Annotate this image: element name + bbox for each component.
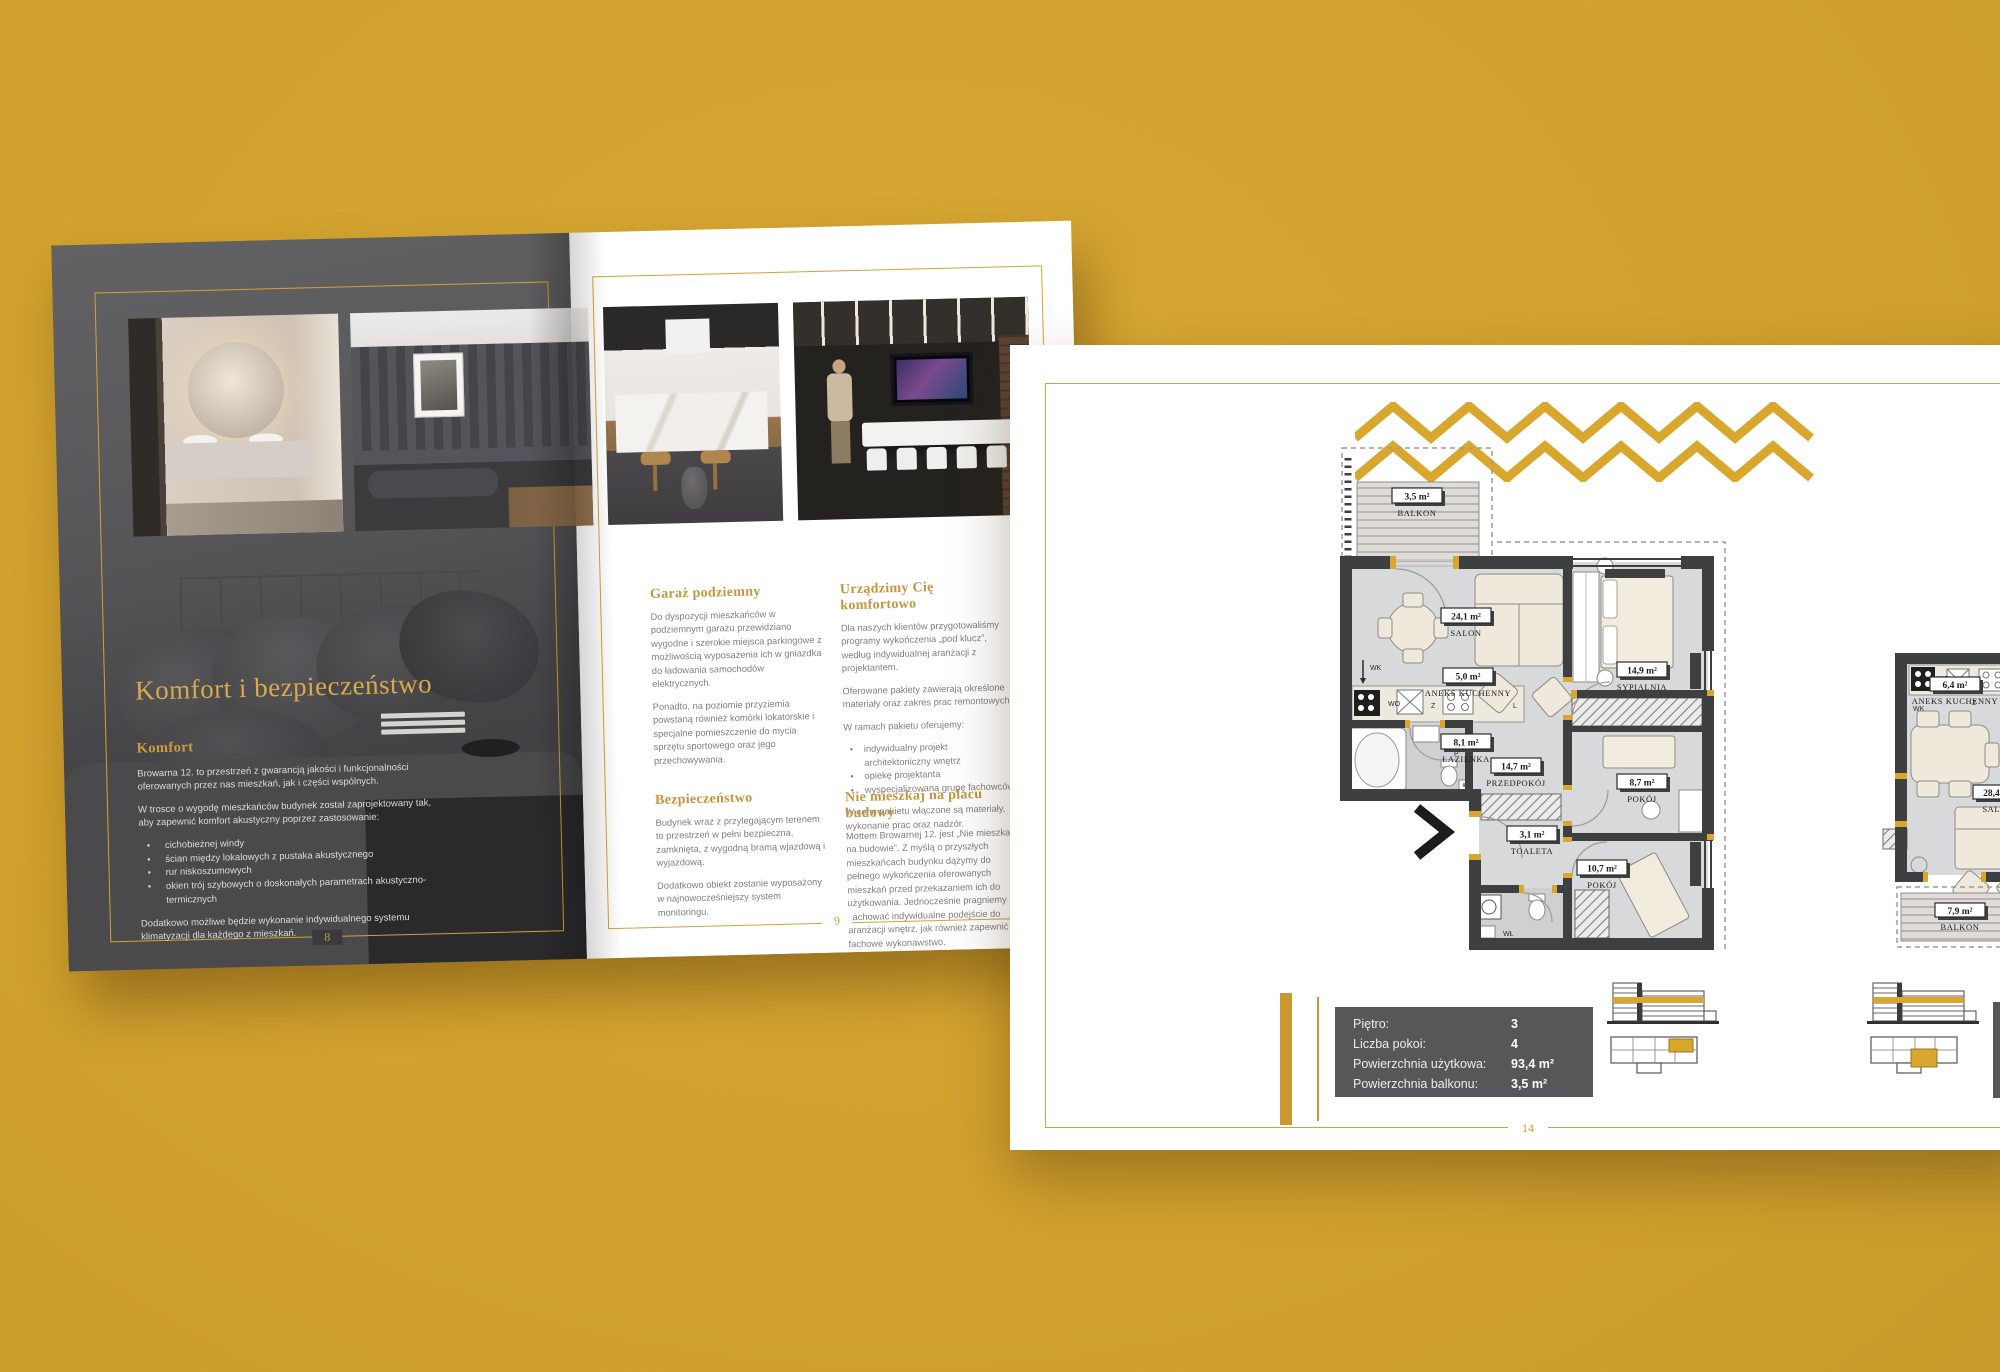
info-label: Piętro:	[1353, 1017, 1389, 1031]
svg-text:3,1 m²: 3,1 m²	[1519, 831, 1544, 841]
paragraph: Ponadto, na poziomie przyziemia powstaną…	[653, 697, 827, 769]
apartment-info-panel-2-partial	[1993, 1002, 2000, 1098]
info-label: Liczba pokoi:	[1353, 1037, 1426, 1051]
paragraph: Browarna 12. to przestrzeń z gwarancją j…	[137, 760, 438, 794]
ceiling-lights-detail	[793, 297, 1029, 347]
floor-plan-secondary: WK WO Z 6,4 m² ANEKS KUCHENNY	[1855, 625, 2000, 955]
photo-bathroom	[128, 314, 343, 537]
svg-text:WO: WO	[1388, 701, 1401, 708]
svg-text:6,4 m²: 6,4 m²	[1942, 681, 1967, 691]
svg-text:L: L	[1513, 703, 1517, 710]
column-garaz: Garaż podziemny Do dyspozycji mieszkańcó…	[650, 583, 827, 777]
svg-text:Z: Z	[1431, 703, 1436, 710]
person-silhouette	[824, 359, 855, 464]
page-title: Komfort i bezpieczeństwo	[135, 668, 466, 707]
page-14: WK WO Z L P WŁ	[1010, 345, 2000, 1150]
building-locator-2	[1857, 977, 1989, 1097]
cooker-hood-detail	[665, 319, 710, 354]
svg-text:POKÓJ: POKÓJ	[1587, 880, 1617, 890]
dining-table-detail	[862, 419, 1013, 447]
tv-screen-detail	[890, 352, 973, 406]
svg-text:10,7 m²: 10,7 m²	[1587, 865, 1617, 875]
page-number-9: 9	[822, 913, 852, 929]
info-label: Powierzchnia balkonu:	[1353, 1077, 1478, 1091]
svg-text:SALON: SALON	[1982, 804, 2000, 814]
svg-text:8,7 m²: 8,7 m²	[1629, 779, 1654, 789]
svg-text:24,1 m²: 24,1 m²	[1451, 613, 1481, 623]
paragraph: W ramach pakietu oferujemy:	[843, 717, 1015, 735]
svg-text:ŁAZIENKA: ŁAZIENKA	[1442, 754, 1490, 764]
floor-plan-main: WK WO Z L P WŁ	[1045, 390, 1740, 960]
bullet-item: okien trój szybowych o doskonałych param…	[140, 873, 441, 908]
photo-living-room	[350, 307, 593, 531]
label-toaleta: 3,1 m² TOALETA	[1507, 826, 1560, 856]
svg-text:SALON: SALON	[1450, 628, 1481, 638]
gold-bar-decoration	[1280, 993, 1292, 1125]
bullet-item: indywidualny projekt architektoniczny wn…	[844, 739, 1017, 770]
apartment-info-panel: Piętro: 3 Liczba pokoi: 4 Powierzchnia u…	[1335, 1007, 1593, 1097]
label-przedpokoj: 14,7 m² PRZEDPOKÓJ	[1486, 758, 1545, 788]
svg-text:5,0 m²: 5,0 m²	[1455, 673, 1480, 683]
info-label: Powierzchnia użytkowa:	[1353, 1057, 1486, 1071]
svg-text:3,5 m²: 3,5 m²	[1404, 493, 1429, 503]
svg-text:BALKON: BALKON	[1940, 922, 1979, 932]
svg-text:8,1 m²: 8,1 m²	[1453, 739, 1478, 749]
page-number-8: 8	[312, 930, 342, 946]
paragraph: Oferowane pakiety zawierają określone ma…	[842, 681, 1015, 712]
column-bezpieczenstwo: Bezpieczeństwo Budynek wraz z przylegają…	[655, 789, 830, 929]
info-value: 4	[1511, 1033, 1518, 1055]
building-locator-1	[1597, 977, 1729, 1097]
svg-text:7,9 m²: 7,9 m²	[1947, 907, 1972, 917]
svg-text:WK: WK	[1370, 665, 1382, 672]
svg-text:TOALETA: TOALETA	[1511, 846, 1554, 856]
paragraph: Mottem Browarnej 12. jest „Nie mieszkaj …	[846, 826, 1021, 951]
entrance-arrow-icon	[1417, 808, 1447, 856]
page-8-text: Komfort i bezpieczeństwo Komfort Browarn…	[135, 668, 472, 954]
photo-dining-room	[793, 297, 1033, 521]
round-mirror-detail	[187, 341, 285, 439]
label-lazienka: 8,1 m² ŁAZIENKA	[1441, 734, 1494, 764]
paragraph: Do dyspozycji mieszkańców w podziemnym g…	[650, 607, 824, 692]
curtains-detail	[351, 341, 591, 451]
column-nie-mieszkaj: Nie mieszkaj na placu budowy Mottem Brow…	[845, 786, 1021, 959]
heading-garaz-podziemny: Garaż podziemny	[650, 583, 822, 603]
svg-text:PRZEDPOKÓJ: PRZEDPOKÓJ	[1486, 778, 1545, 788]
paragraph: W trosce o wygodę mieszkańców budynek zo…	[138, 796, 439, 830]
paragraph: Dodatkowo obiekt zostanie wyposażony w n…	[657, 876, 830, 921]
paragraph: Budynek wraz z przylegającym terenem to …	[655, 813, 828, 871]
info-value: 93,4 m²	[1511, 1053, 1554, 1075]
info-value: 3,5 m²	[1511, 1073, 1547, 1095]
svg-text:ANEKS KUCHENNY: ANEKS KUCHENNY	[1425, 688, 1512, 698]
svg-text:BALKON: BALKON	[1397, 508, 1436, 518]
heading-urzadzimy: Urządzimy Cię komfortowo	[840, 578, 1013, 614]
wall-art-detail	[413, 353, 465, 418]
marble-island-detail	[615, 391, 768, 453]
heading-bezpieczenstwo: Bezpieczeństwo	[655, 789, 827, 809]
vanity-detail	[167, 440, 310, 479]
paragraph: Dodatkowo możliwe będzie wykonanie indyw…	[141, 910, 442, 944]
bullet-list: cichobieżnej windy ścian między lokalowy…	[139, 832, 441, 908]
section-heading-komfort: Komfort	[136, 733, 466, 758]
svg-text:POKÓJ: POKÓJ	[1627, 794, 1657, 804]
svg-text:ANEKS KUCHENNY: ANEKS KUCHENNY	[1912, 696, 1999, 706]
page-number-14: 14	[1508, 1121, 1548, 1136]
svg-text:14,7 m²: 14,7 m²	[1501, 763, 1531, 773]
heading-nie-mieszkaj: Nie mieszkaj na placu budowy	[845, 786, 1018, 822]
brochure-spread: Komfort i bezpieczeństwo Komfort Browarn…	[51, 221, 1088, 972]
info-value: 3	[1511, 1013, 1518, 1035]
svg-text:WŁ: WŁ	[1503, 931, 1514, 938]
vase-detail	[681, 467, 708, 510]
svg-text:SYPIALNIA: SYPIALNIA	[1617, 682, 1668, 692]
paragraph: Dla naszych klientów przygotowaliśmy pro…	[841, 618, 1014, 676]
svg-text:28,4 m²: 28,4 m²	[1983, 789, 2000, 799]
svg-text:14,9 m²: 14,9 m²	[1627, 667, 1657, 677]
label-sypialnia: 14,9 m² SYPIALNIA	[1617, 662, 1670, 692]
photo-kitchen-island	[603, 303, 783, 525]
gold-line-decoration	[1317, 997, 1319, 1121]
